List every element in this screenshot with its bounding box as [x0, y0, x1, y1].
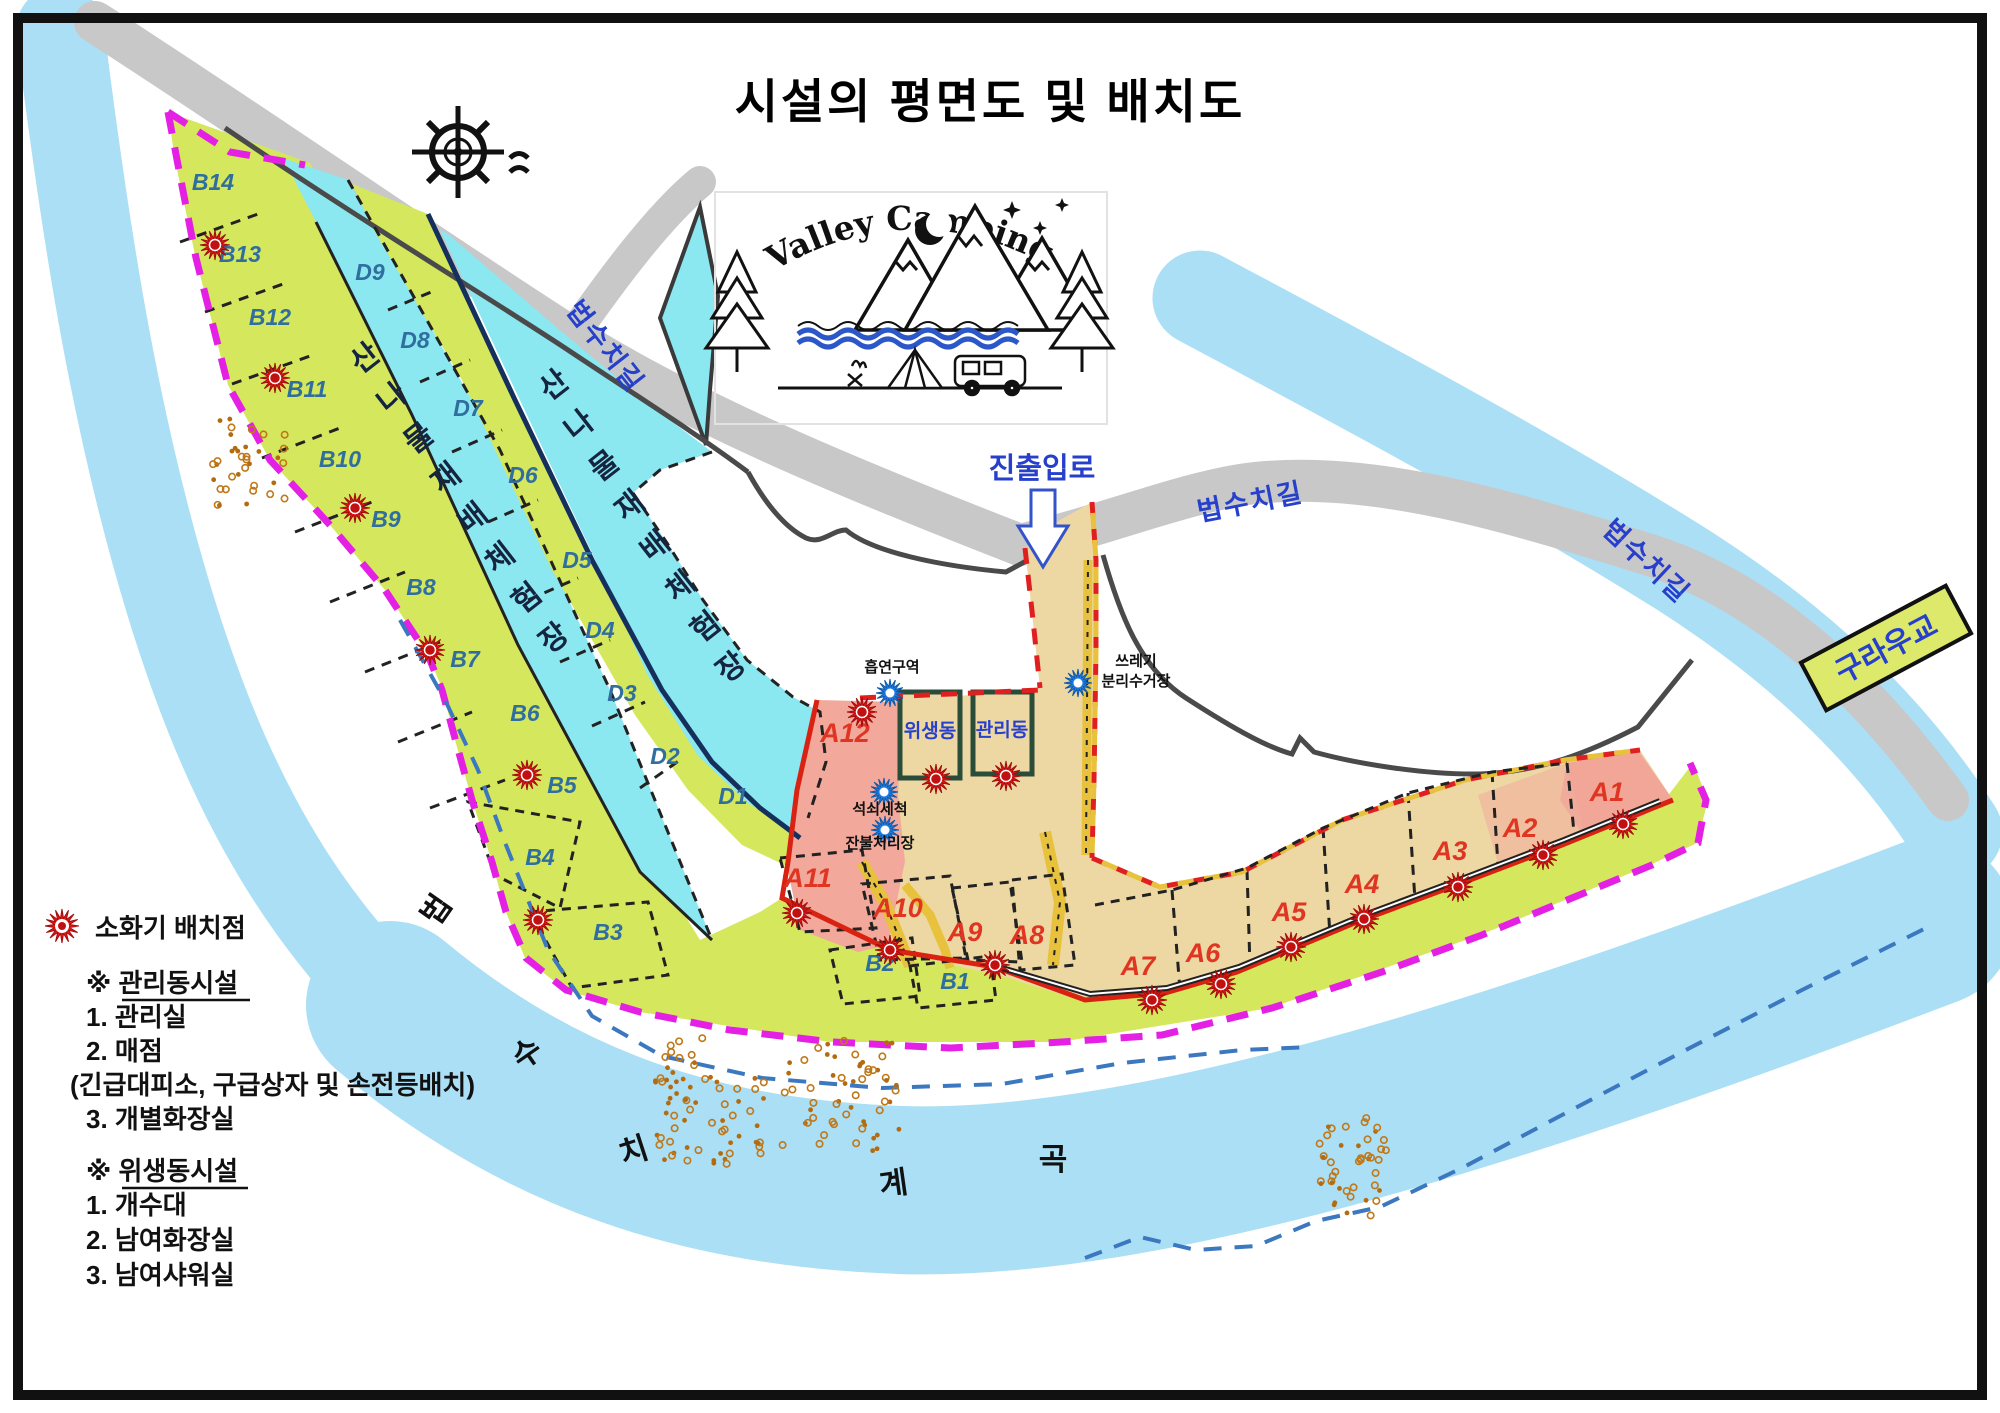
- site-label-a11: A11: [783, 863, 832, 893]
- tree-dot-icon: [761, 1096, 766, 1101]
- fire-extinguisher-icon: [1349, 904, 1379, 934]
- fire-extinguisher-icon: [512, 760, 542, 790]
- facility-point-icon: [1064, 669, 1092, 697]
- tree-dot-icon: [787, 1060, 792, 1065]
- tree-dot-icon: [256, 449, 261, 454]
- management-building-label: 관리동: [976, 719, 1028, 741]
- site-label-d5: D5: [562, 547, 593, 573]
- tree-dot-icon: [708, 1075, 713, 1080]
- tree-dot-icon: [843, 1081, 848, 1086]
- tree-dot-icon: [714, 1080, 719, 1085]
- legend-item: 1. 개수대: [86, 1190, 187, 1220]
- site-label-a3: A3: [1432, 836, 1468, 866]
- tree-dot-icon: [688, 1085, 693, 1090]
- tree-dot-icon: [1321, 1155, 1326, 1160]
- tree-dot-icon: [711, 1161, 716, 1166]
- fire-extinguisher-icon: [523, 905, 553, 935]
- river-name-char: 계: [877, 1164, 910, 1203]
- tree-dot-icon: [858, 1062, 863, 1067]
- tree-dot-icon: [664, 1078, 669, 1083]
- fire-extinguisher-icon: [875, 935, 905, 965]
- tree-dot-icon: [1330, 1180, 1335, 1185]
- tree-dot-icon: [653, 1080, 658, 1085]
- site-label-d7: D7: [453, 395, 484, 421]
- site-label-a9: A9: [947, 917, 983, 947]
- site-label-a7: A7: [1120, 951, 1157, 981]
- fire-extinguisher-icon: [1206, 969, 1236, 999]
- site-label-b4: B4: [525, 844, 555, 870]
- site-label-d9: D9: [355, 259, 385, 285]
- page-title: 시설의 평면도 및 배치도: [735, 75, 1246, 128]
- trash-label-line2: 분리수거장: [1101, 672, 1170, 690]
- tree-dot-icon: [218, 418, 223, 423]
- site-label-d4: D4: [585, 617, 615, 643]
- tree-dot-icon: [665, 1065, 670, 1070]
- fire-extinguisher-icon: [1137, 985, 1167, 1015]
- tree-dot-icon: [849, 1105, 854, 1110]
- tree-dot-icon: [728, 1140, 733, 1145]
- tree-dot-icon: [217, 503, 222, 508]
- legend-fire-ext-label: 소화기 배치점: [95, 913, 246, 943]
- tree-dot-icon: [871, 1136, 876, 1141]
- tree-dot-icon: [670, 1070, 675, 1075]
- tree-dot-icon: [1337, 1186, 1342, 1191]
- site-label-b14: B14: [192, 169, 234, 195]
- tree-dot-icon: [668, 1096, 673, 1101]
- legend-item: (긴급대피소, 구급상자 및 손전등배치): [70, 1070, 475, 1100]
- tree-dot-icon: [693, 1100, 698, 1105]
- site-label-a10: A10: [872, 893, 923, 923]
- tree-dot-icon: [736, 1099, 741, 1104]
- tree-dot-icon: [674, 1091, 679, 1096]
- tree-dot-icon: [884, 1078, 889, 1083]
- tree-dot-icon: [683, 1097, 688, 1102]
- tree-dot-icon: [825, 1052, 830, 1057]
- site-label-a5: A5: [1271, 897, 1307, 927]
- site-label-d6: D6: [508, 462, 538, 488]
- legend-item: 2. 매점: [86, 1036, 163, 1066]
- fire-extinguisher-icon: [991, 761, 1021, 791]
- site-label-b1: B1: [940, 968, 969, 994]
- legend-item: 1. 관리실: [86, 1002, 187, 1032]
- river-name-char: 곡: [1039, 1142, 1068, 1177]
- site-label-d1: D1: [718, 783, 747, 809]
- fire-extinguisher-icon: [921, 764, 951, 794]
- tree-dot-icon: [851, 1079, 856, 1084]
- tree-dot-icon: [244, 502, 249, 507]
- tree-dot-icon: [233, 446, 238, 451]
- fire-extinguisher-legend-icon: [45, 909, 79, 943]
- tree-dot-icon: [1377, 1188, 1382, 1193]
- sanitation-building-label: 위생동: [904, 720, 956, 742]
- fire-extinguisher-icon: [200, 230, 230, 260]
- tree-dot-icon: [271, 480, 276, 485]
- tree-dot-icon: [832, 1054, 837, 1059]
- legend-item: 3. 개별화장실: [86, 1104, 235, 1134]
- tree-dot-icon: [668, 1085, 673, 1090]
- tree-dot-icon: [737, 1134, 742, 1139]
- legend-sani-title: ※ 위생동시설: [86, 1156, 238, 1186]
- tree-dot-icon: [861, 1119, 866, 1124]
- tree-dot-icon: [870, 1148, 875, 1153]
- tree-dot-icon: [211, 477, 216, 482]
- tree-dot-icon: [1364, 1198, 1369, 1203]
- tree-dot-icon: [682, 1118, 687, 1123]
- site-label-a1: A1: [1589, 777, 1625, 807]
- entrance-label: 진출입로: [989, 452, 1096, 485]
- tree-dot-icon: [884, 1040, 889, 1045]
- site-label-a8: A8: [1009, 920, 1045, 950]
- tree-dot-icon: [228, 432, 233, 437]
- tree-dot-icon: [897, 1127, 902, 1132]
- fire-extinguisher-icon: [980, 950, 1010, 980]
- site-label-d8: D8: [400, 327, 430, 353]
- tree-dot-icon: [674, 1079, 679, 1084]
- tree-dot-icon: [831, 1073, 836, 1078]
- map-canvas: 위생동 관리동 구라우교: [0, 0, 2000, 1413]
- fire-extinguisher-icon: [1276, 932, 1306, 962]
- campground-map: 위생동 관리동 구라우교: [0, 0, 2000, 1413]
- tree-dot-icon: [236, 472, 241, 477]
- legend-mgmt-title: ※ 관리동시설: [86, 968, 238, 998]
- tree-dot-icon: [718, 1151, 723, 1156]
- tree-dot-icon: [243, 445, 248, 450]
- site-label-b10: B10: [319, 446, 361, 472]
- smoking-area-label: 흡연구역: [864, 658, 919, 676]
- tree-dot-icon: [227, 417, 232, 422]
- fire-extinguisher-icon: [782, 898, 812, 928]
- fire-extinguisher-icon: [260, 363, 290, 393]
- site-label-b11: B11: [287, 376, 328, 402]
- site-label-d2: D2: [650, 743, 680, 769]
- ember-label: 잔불처리장: [845, 834, 914, 852]
- tree-dot-icon: [664, 1111, 669, 1116]
- facility-point-icon: [876, 679, 904, 707]
- tree-dot-icon: [875, 1146, 880, 1151]
- fire-extinguisher-icon: [847, 697, 877, 727]
- tree-dot-icon: [720, 1118, 725, 1123]
- site-label-b3: B3: [593, 919, 623, 945]
- tree-dot-icon: [756, 1141, 761, 1146]
- legend-item: 3. 남여샤워실: [86, 1260, 235, 1290]
- fire-extinguisher-icon: [1528, 840, 1558, 870]
- fire-extinguisher-icon: [340, 493, 370, 523]
- site-label-a6: A6: [1185, 938, 1221, 968]
- trash-label-line1: 쓰레기: [1115, 653, 1156, 670]
- site-label-b7: B7: [450, 646, 481, 672]
- tree-dot-icon: [685, 1145, 690, 1150]
- tree-dot-icon: [1339, 1143, 1344, 1148]
- tree-dot-icon: [890, 1041, 895, 1046]
- fire-extinguisher-icon: [1443, 872, 1473, 902]
- site-label-b6: B6: [510, 700, 540, 726]
- site-label-b9: B9: [371, 506, 401, 532]
- site-label-a2: A2: [1502, 813, 1538, 843]
- tree-dot-icon: [1345, 1211, 1350, 1216]
- site-label-b8: B8: [406, 574, 436, 600]
- tree-dot-icon: [1332, 1202, 1337, 1207]
- tree-dot-icon: [692, 1060, 697, 1065]
- dishwash-label: 석쇠세척: [852, 800, 907, 818]
- tree-dot-icon: [275, 455, 280, 460]
- tree-dot-icon: [825, 1042, 830, 1047]
- site-label-a4: A4: [1344, 869, 1380, 899]
- site-label-b5: B5: [547, 772, 578, 798]
- tree-dot-icon: [1326, 1124, 1331, 1129]
- tree-dot-icon: [808, 1107, 813, 1112]
- tree-dot-icon: [662, 1157, 667, 1162]
- tree-dot-icon: [1319, 1181, 1324, 1186]
- tree-dot-icon: [681, 1077, 686, 1082]
- tree-dot-icon: [894, 1083, 899, 1088]
- tree-dot-icon: [752, 1076, 757, 1081]
- tree-dot-icon: [1356, 1143, 1361, 1148]
- site-label-b12: B12: [249, 304, 291, 330]
- tree-dot-icon: [875, 1133, 880, 1138]
- legend-item: 2. 남여화장실: [86, 1225, 235, 1255]
- tree-dot-icon: [786, 1071, 791, 1076]
- fire-extinguisher-icon: [1608, 809, 1638, 839]
- tree-dot-icon: [666, 1101, 671, 1106]
- fire-extinguisher-icon: [415, 635, 445, 665]
- tree-dot-icon: [755, 1123, 760, 1128]
- site-label-d3: D3: [607, 680, 637, 706]
